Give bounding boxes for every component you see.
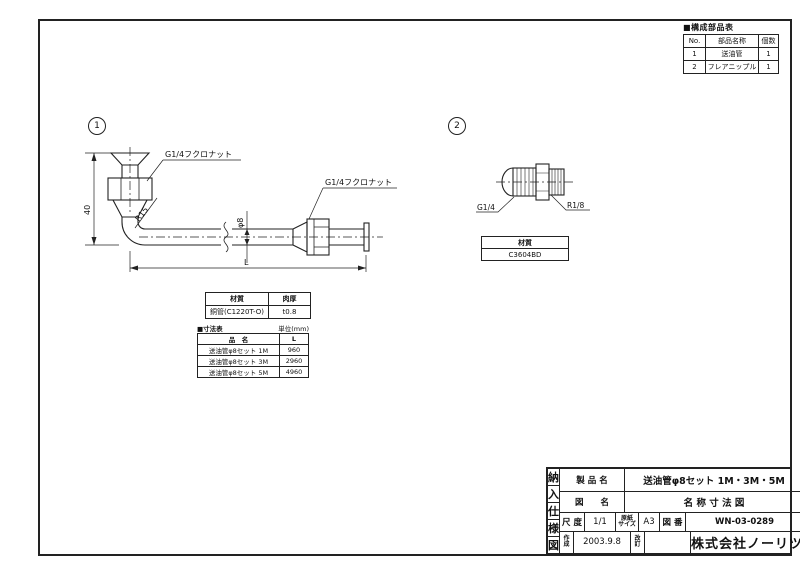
parts-row: 2 フレアニップル 1 [684, 61, 778, 73]
drawing-no-value: WN-03-0289 [686, 513, 800, 530]
dim-name: 送油管φ8セット 1M [198, 345, 280, 355]
side-char: 様 [548, 520, 559, 537]
item2-material-table: 材質 C3604BD [481, 236, 569, 261]
item1-drawing: G1/4フクロナット G1/4フクロナット 40 φ8 R15 L [55, 135, 400, 280]
thickness-value: t0.8 [269, 306, 310, 318]
item1-material-table: 材質 肉厚 銅管(C1220T-O) t0.8 [205, 292, 311, 319]
drawing-name-label: 図 名 [560, 492, 625, 512]
created-date: 2003.9.8 [574, 532, 631, 553]
dim-len: 4960 [280, 367, 308, 377]
scale-label: 尺 度 [560, 513, 585, 530]
material-value: 銅管(C1220T-O) [206, 306, 269, 318]
dim-L: L [244, 258, 249, 267]
dim-40: 40 [83, 205, 92, 215]
dim-table-unit: 単位(mm) [278, 323, 309, 333]
leader-nut-top [147, 160, 241, 181]
dimension-lines [85, 153, 397, 272]
side-char: 入 [548, 486, 559, 503]
thickness-header: 肉厚 [269, 293, 310, 305]
paper-size-label: 原紙 サイズ [616, 513, 639, 530]
label-r18: R1/8 [567, 201, 585, 210]
dim-len: 960 [280, 345, 308, 355]
dim-40-lines [85, 153, 119, 245]
material-value: C3604BD [482, 249, 568, 260]
side-char: 図 [548, 537, 559, 553]
part-qty: 1 [759, 48, 778, 60]
dim-name: 送油管φ8セット 5M [198, 367, 280, 377]
part-name: フレアニップル [706, 61, 759, 73]
label-r15: R15 [133, 205, 150, 223]
dim-col-name: 品 名 [198, 334, 280, 344]
material-header: 材質 [482, 237, 568, 248]
dim-col-len: L [280, 334, 308, 344]
item2-balloon: 2 [448, 117, 466, 135]
label-cap-nut-right: G1/4フクロナット [325, 178, 392, 187]
paper-size-value: A3 [639, 513, 660, 530]
drawing-name: 名 称 寸 法 図 [625, 492, 800, 512]
dim-row: 送油管φ8セット 3M 2960 [198, 356, 308, 367]
drawing-no-label: 図 番 [660, 513, 686, 530]
scale-row: 尺 度 1/1 原紙 サイズ A3 図 番 WN-03-0289 [560, 513, 800, 531]
product-label: 製 品 名 [560, 469, 625, 491]
dim-name: 送油管φ8セット 3M [198, 356, 280, 366]
parts-list: ■構成部品表 No. 部品名称 個数 1 送油管 1 2 フレアニップル 1 [683, 22, 779, 74]
dim-len: 2960 [280, 356, 308, 366]
company-name: 株式会社ノーリツ [691, 532, 800, 553]
item1-labels: G1/4フクロナット G1/4フクロナット 40 φ8 R15 L [83, 150, 392, 267]
material-value-row: C3604BD [482, 249, 568, 260]
flare-nipple [496, 164, 576, 200]
part-no: 2 [684, 61, 706, 73]
product-name: 送油管φ8セット 1M・3M・5M [625, 469, 800, 491]
side-char: 仕 [548, 503, 559, 520]
created-label: 作 成 [560, 532, 574, 553]
parts-list-title: ■構成部品表 [683, 22, 779, 33]
parts-list-table: No. 部品名称 個数 1 送油管 1 2 フレアニップル 1 [683, 34, 779, 74]
item1-balloon: 1 [88, 117, 106, 135]
col-no: No. [684, 35, 706, 47]
material-header: 材質 [206, 293, 269, 305]
item2-drawing: G1/4 R1/8 [440, 150, 610, 225]
parts-row: 1 送油管 1 [684, 48, 778, 61]
dim-row: 送油管φ8セット 1M 960 [198, 345, 308, 356]
tube-inner-wall [138, 217, 221, 229]
dim-table-title: ■寸法表 [197, 323, 223, 333]
label-g14: G1/4 [477, 203, 495, 212]
title-block-side-label: 納 入 仕 様 図 [548, 469, 560, 553]
dim-arrows [92, 153, 367, 271]
part-name: 送油管 [706, 48, 759, 60]
dim-table-caption: ■寸法表 単位(mm) [197, 324, 309, 333]
col-name: 部品名称 [706, 35, 759, 47]
item2-labels: G1/4 R1/8 [477, 201, 585, 212]
item1-dimension-table: ■寸法表 単位(mm) 品 名 L 送油管φ8セット 1M 960 送油管φ8セ… [197, 324, 309, 378]
created-label-line2: 成 [563, 542, 569, 549]
product-row: 製 品 名 送油管φ8セット 1M・3M・5M [560, 469, 800, 492]
pipe-assembly [108, 147, 383, 255]
label-cap-nut-top: G1/4フクロナット [165, 150, 232, 159]
leader-nut-right [309, 188, 397, 219]
revised-label: 改 訂 [631, 532, 645, 553]
side-char: 納 [548, 469, 559, 486]
dim-dia8: φ8 [236, 218, 245, 228]
part-qty: 1 [759, 61, 778, 73]
parts-header-row: No. 部品名称 個数 [684, 35, 778, 48]
dim-row: 送油管φ8セット 5M 4960 [198, 367, 308, 377]
col-qty: 個数 [759, 35, 778, 47]
dim-table: 品 名 L 送油管φ8セット 1M 960 送油管φ8セット 3M 2960 送… [197, 333, 309, 378]
part-no: 1 [684, 48, 706, 60]
created-row: 作 成 2003.9.8 改 訂 株式会社ノーリツ [560, 532, 800, 553]
drawing-name-row: 図 名 名 称 寸 法 図 [560, 492, 800, 513]
revised-date [645, 532, 691, 553]
material-header-row: 材質 肉厚 [206, 293, 310, 306]
material-header-row: 材質 [482, 237, 568, 249]
dim-header-row: 品 名 L [198, 334, 308, 345]
revised-label-line2: 訂 [634, 542, 640, 549]
title-block-main: 製 品 名 送油管φ8セット 1M・3M・5M 図 名 名 称 寸 法 図 尺 … [560, 469, 800, 553]
material-value-row: 銅管(C1220T-O) t0.8 [206, 306, 310, 318]
scale-value: 1/1 [585, 513, 616, 530]
title-block: 納 入 仕 様 図 製 品 名 送油管φ8セット 1M・3M・5M 図 名 名 … [546, 467, 792, 555]
paper-label-line2: サイズ [618, 522, 636, 529]
